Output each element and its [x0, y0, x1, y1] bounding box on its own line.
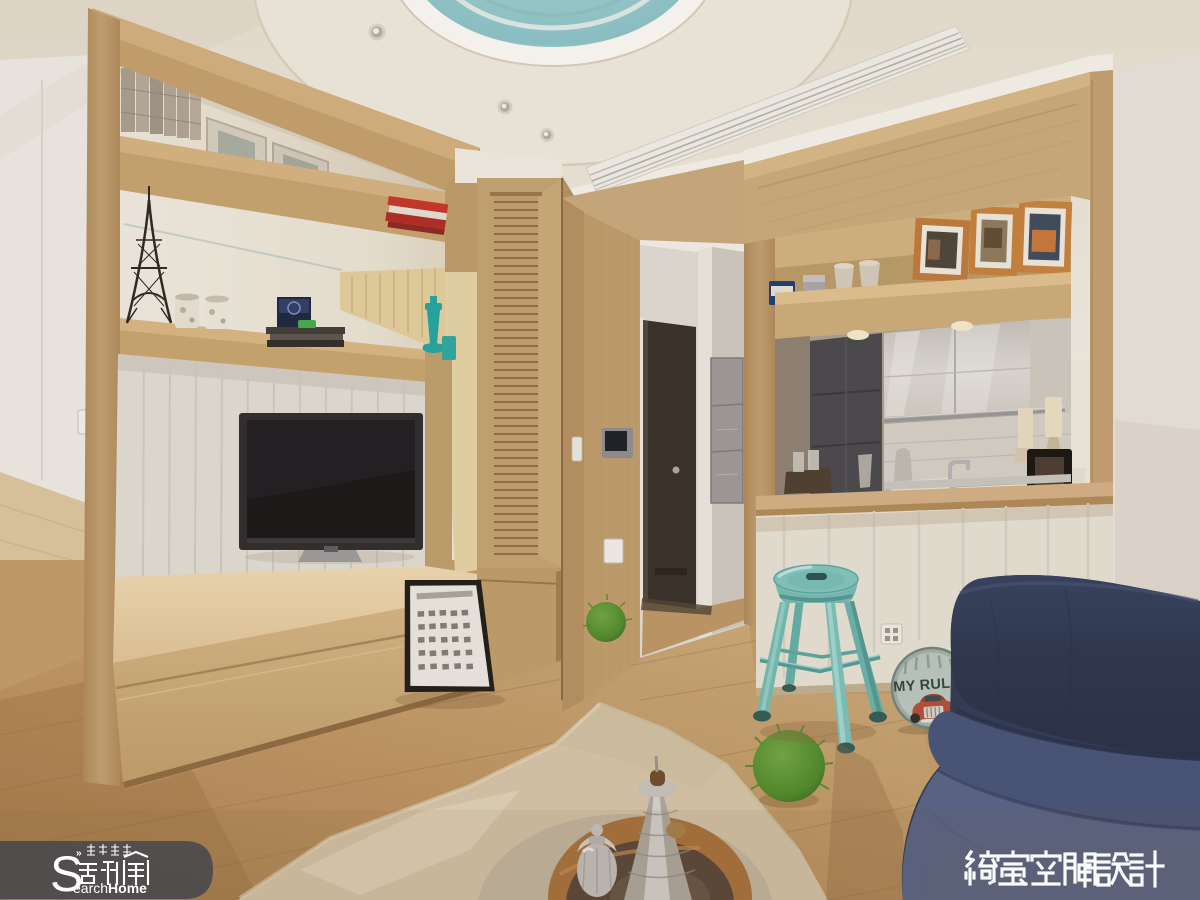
svg-text:»: » — [76, 848, 82, 859]
svg-text:earchHome: earchHome — [73, 880, 147, 896]
